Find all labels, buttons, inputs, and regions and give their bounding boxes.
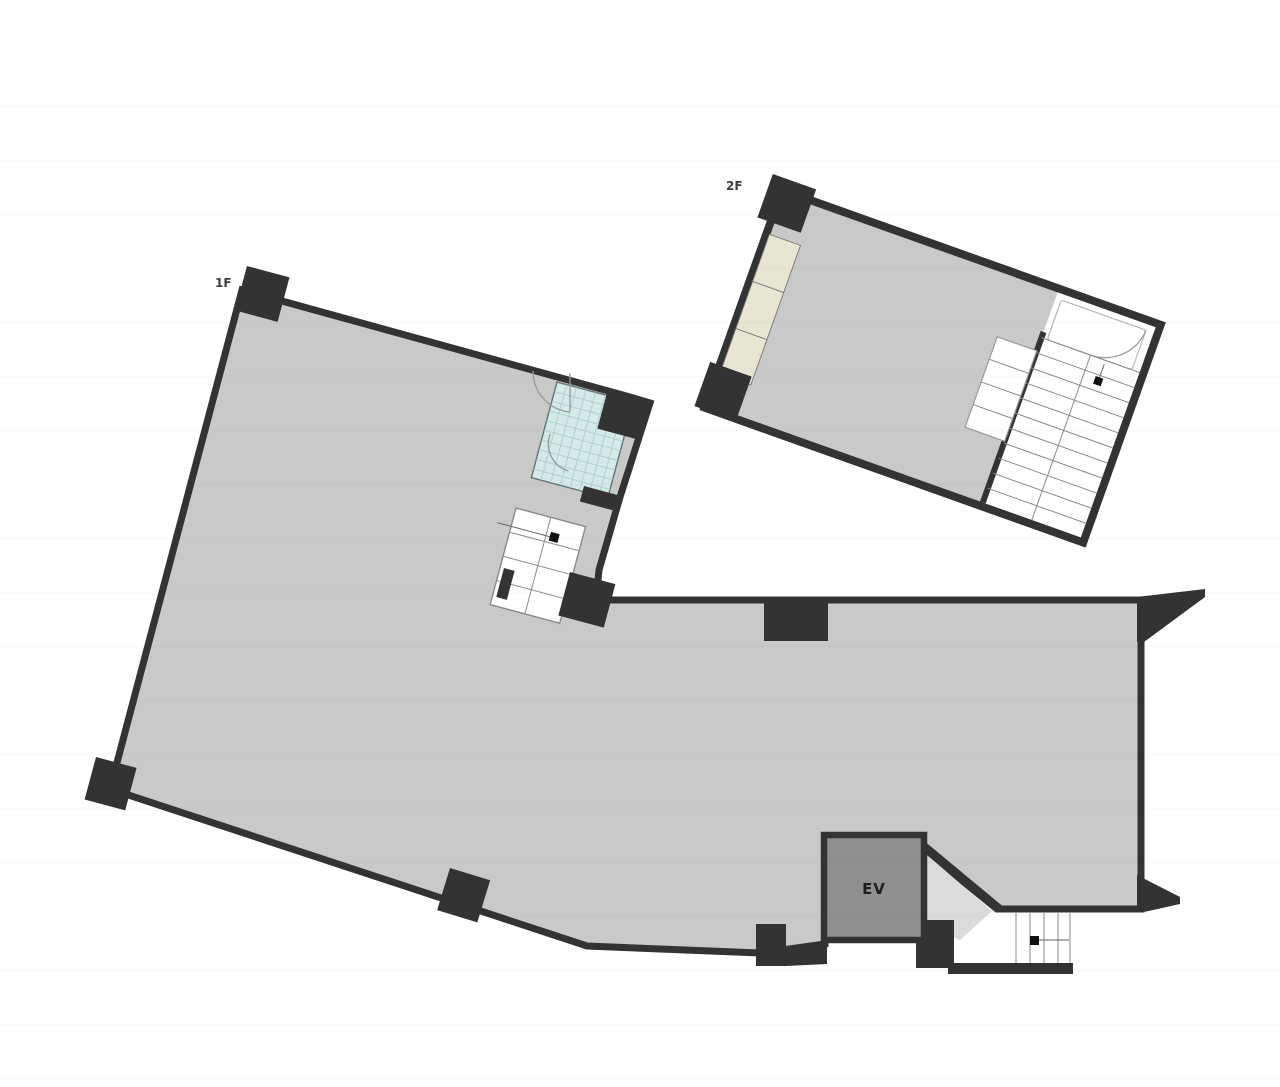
pillar-right-top-wedge bbox=[1137, 589, 1205, 642]
pillar-right-bottom-wedge bbox=[1137, 875, 1180, 912]
entrance-step-lines bbox=[1016, 913, 1070, 964]
floor-plan-canvas: EV 1F bbox=[0, 0, 1280, 1087]
entrance-arrow-dot bbox=[1030, 936, 1039, 945]
floor-2f bbox=[691, 174, 1165, 544]
entrance-bottom-wall bbox=[948, 963, 1073, 974]
floor-2f-label: 2F bbox=[726, 179, 743, 193]
elevator-label: EV bbox=[862, 880, 886, 898]
wall-under-elevator bbox=[786, 942, 827, 966]
pillar-left-of-elevator bbox=[756, 924, 786, 966]
floor-plan-page: EV 1F bbox=[0, 0, 1280, 1087]
elevator-shaft: EV bbox=[824, 835, 924, 940]
pillar-top-wall bbox=[764, 597, 828, 641]
floor-1f-label: 1F bbox=[215, 276, 232, 290]
